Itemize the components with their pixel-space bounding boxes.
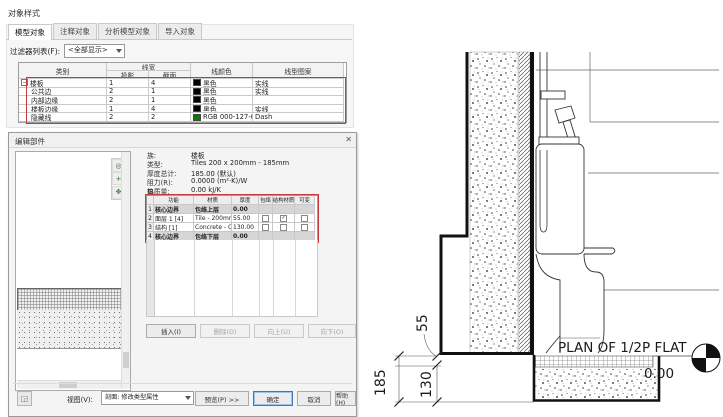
screenshot-root: 对象样式 模型对象 注释对象 分析模型对象 导入对象 过滤器列表(F): <全部…	[0, 0, 723, 417]
dim-185: 185	[373, 369, 389, 396]
floor-slab	[534, 355, 659, 401]
level-target-icon	[692, 344, 720, 372]
plan-label: PLAN OF 1/2P FLAT	[558, 340, 687, 356]
wall-section	[441, 52, 534, 355]
level-value: 0.00	[644, 366, 674, 382]
dim-130: 130	[419, 371, 435, 398]
dim-55: 55	[415, 314, 431, 332]
toilet-fixture	[536, 52, 615, 353]
section-detail-drawing: PLAN OF 1/2P FLAT 0.00	[0, 0, 723, 417]
